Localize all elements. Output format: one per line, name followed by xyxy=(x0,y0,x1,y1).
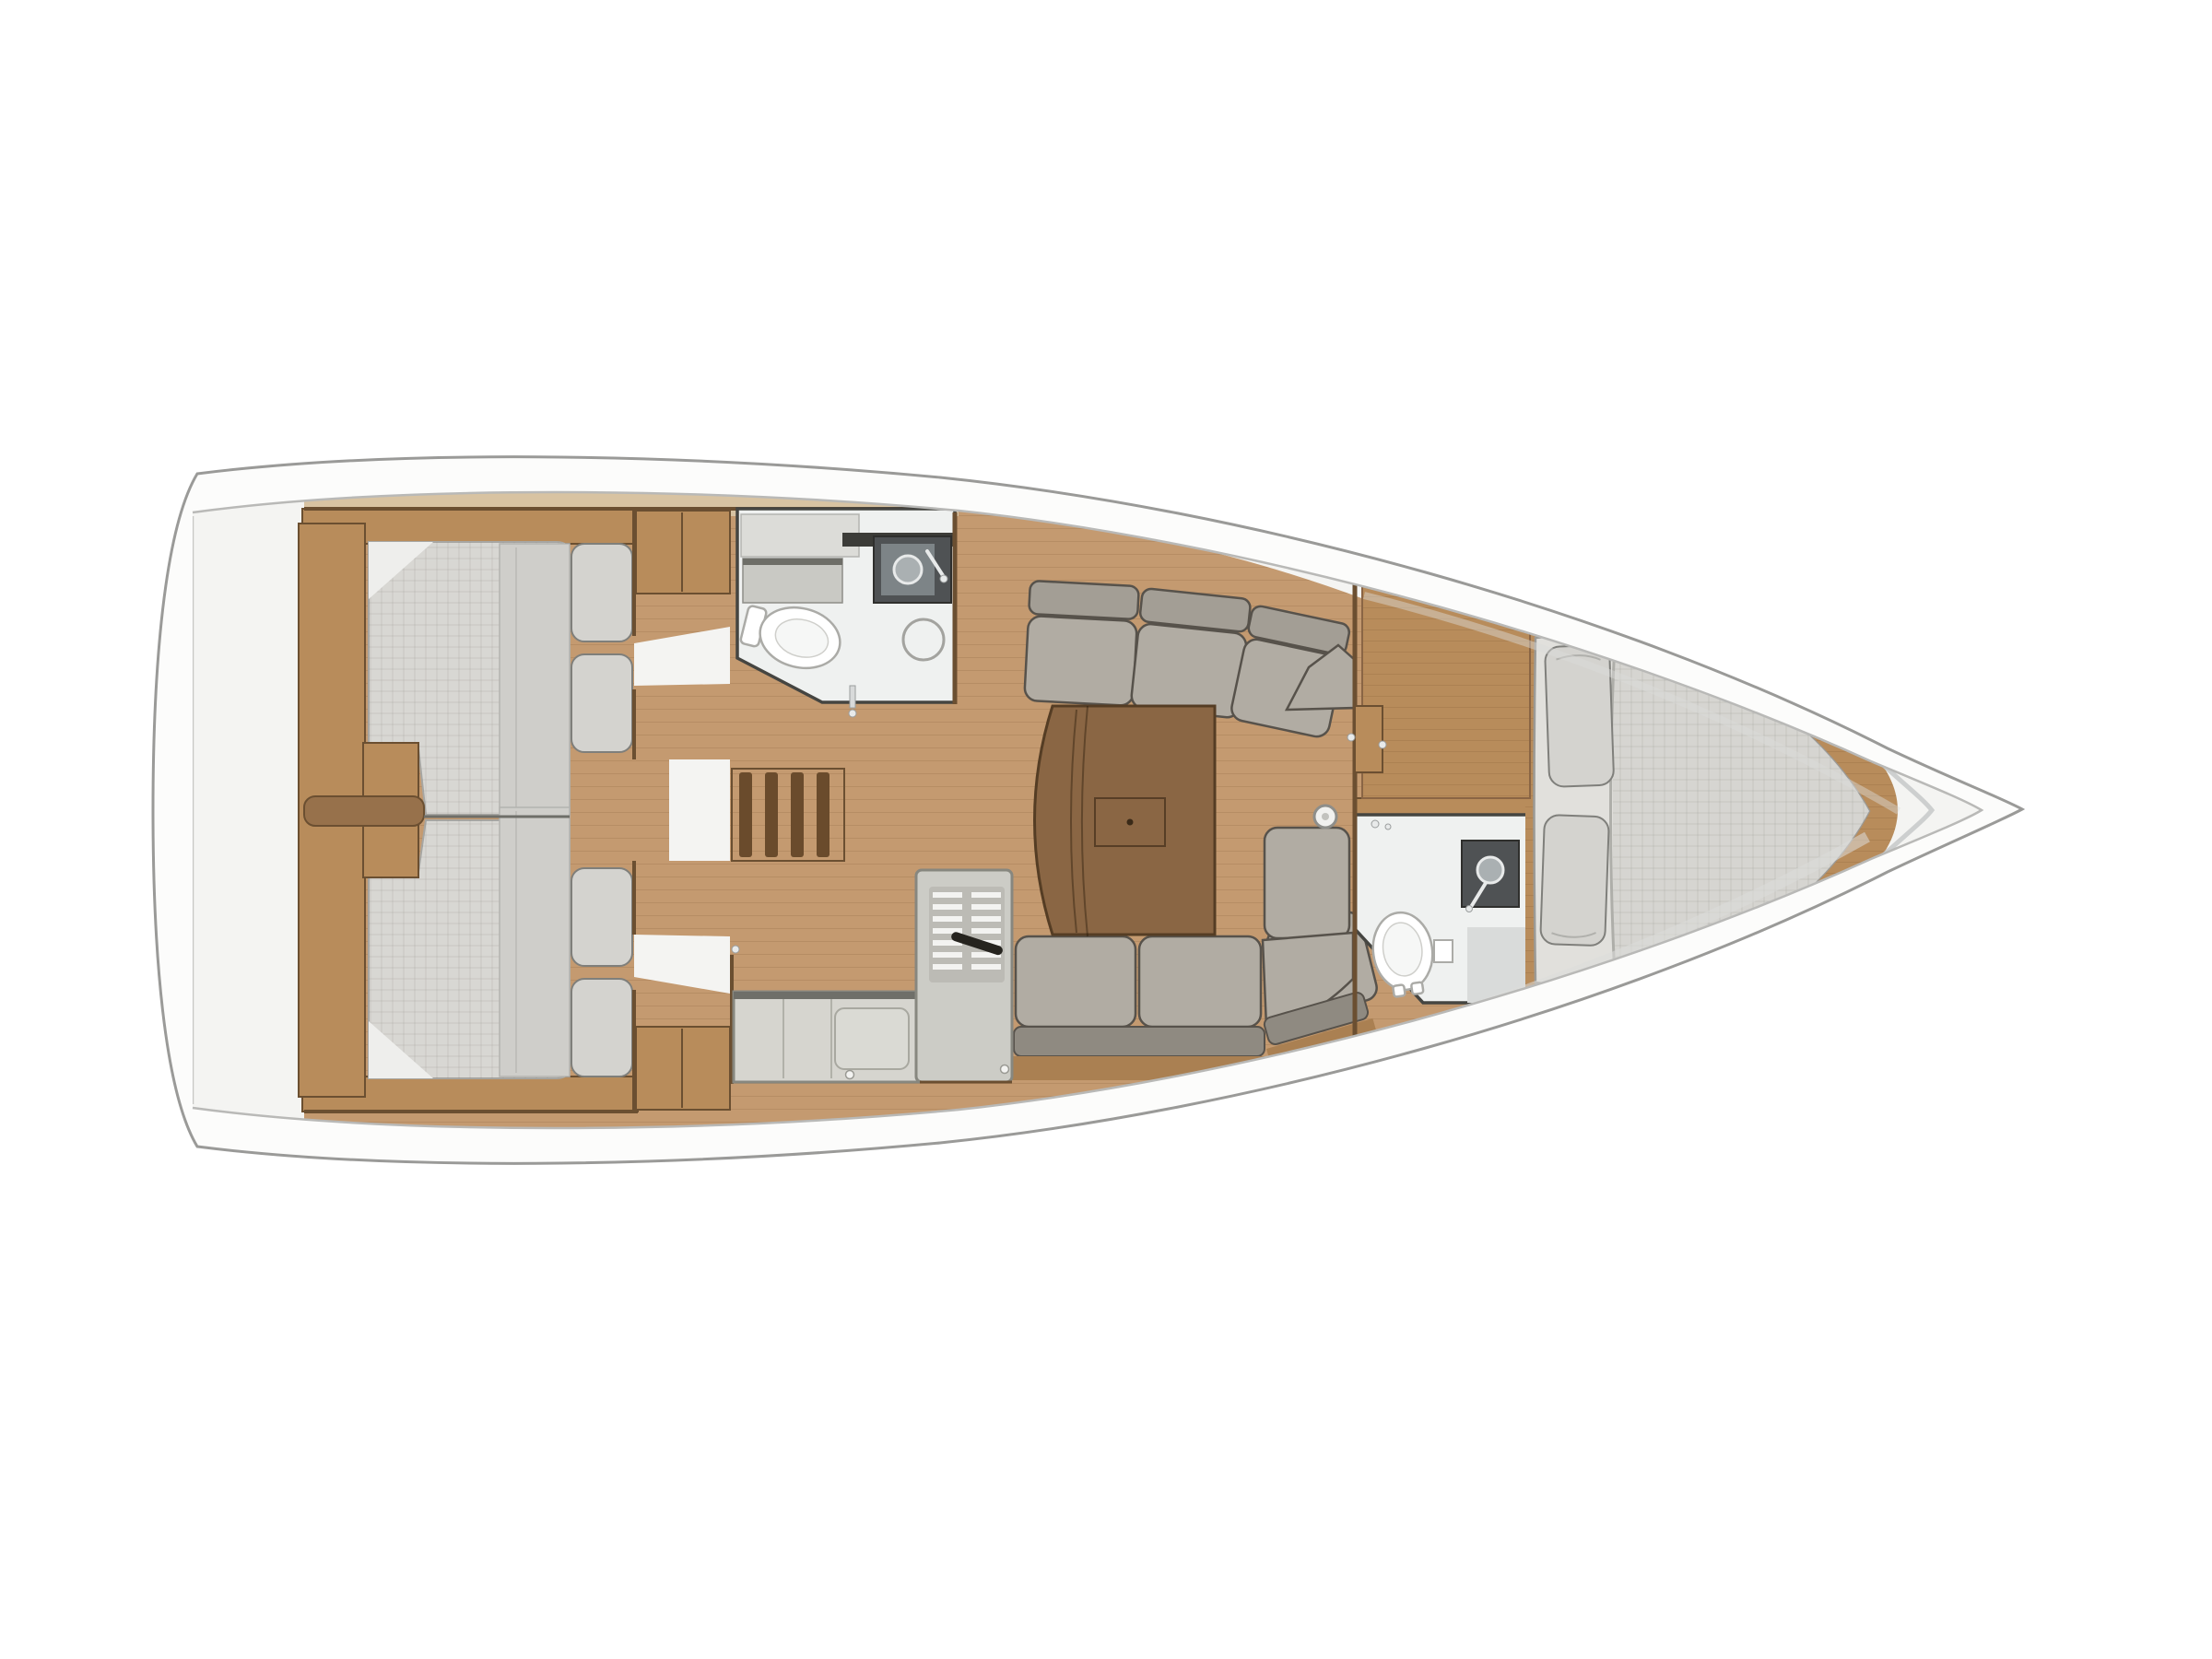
locker-knob xyxy=(846,1071,854,1079)
duvet-band xyxy=(500,544,570,813)
folding-table xyxy=(1035,706,1216,935)
sink-cover xyxy=(835,1008,909,1069)
sink-bowl xyxy=(1477,857,1503,883)
stair-tread xyxy=(817,772,829,857)
salon xyxy=(1010,581,1380,1080)
faucet-base xyxy=(940,575,947,582)
pillow xyxy=(1545,645,1614,787)
compression-post-cap xyxy=(1322,813,1329,820)
door-handle xyxy=(1379,741,1386,748)
yacht-floor-plan xyxy=(0,0,2212,1659)
berth-divider-bar xyxy=(304,796,424,826)
counter-edge xyxy=(734,992,920,999)
cabin-door-handle xyxy=(732,946,739,953)
pillow xyxy=(571,979,632,1077)
floor-plan-canvas xyxy=(0,0,2212,1659)
head-counter xyxy=(743,559,842,603)
stb-settee-seat xyxy=(1016,936,1135,1027)
head-cabinet xyxy=(741,514,859,557)
stair-tread xyxy=(739,772,752,857)
pillow xyxy=(1540,815,1609,946)
fridge-knob xyxy=(1001,1065,1009,1074)
forward-head-starboard xyxy=(1355,798,1528,1003)
stair-tread xyxy=(791,772,804,857)
sink-bowl xyxy=(894,556,922,583)
counter-edge xyxy=(743,559,842,565)
landing xyxy=(669,759,730,861)
toilet-hinge xyxy=(1393,984,1406,997)
stb-settee-seat xyxy=(1139,936,1261,1027)
door-handle xyxy=(1347,734,1355,741)
door-hinge xyxy=(1385,824,1391,829)
stair-tread xyxy=(765,772,778,857)
pillow xyxy=(571,654,632,752)
toilet-hinge xyxy=(1411,982,1424,994)
door-handle-knob xyxy=(849,710,856,717)
faucet-base xyxy=(1466,906,1473,912)
companionway xyxy=(669,759,844,861)
duvet-band xyxy=(500,807,570,1077)
forward-cabin-door xyxy=(1355,706,1382,772)
pillow xyxy=(571,544,632,641)
door-handle xyxy=(850,686,855,708)
pillow xyxy=(571,868,632,966)
paper-holder xyxy=(1434,940,1453,962)
interior xyxy=(147,442,2000,1189)
door-hinge xyxy=(1371,820,1379,828)
stb-settee-backrest xyxy=(1014,1027,1265,1056)
l-bench-seat xyxy=(1265,828,1349,938)
port-settee-section xyxy=(1024,581,1139,706)
table-center-pin xyxy=(1127,819,1134,826)
